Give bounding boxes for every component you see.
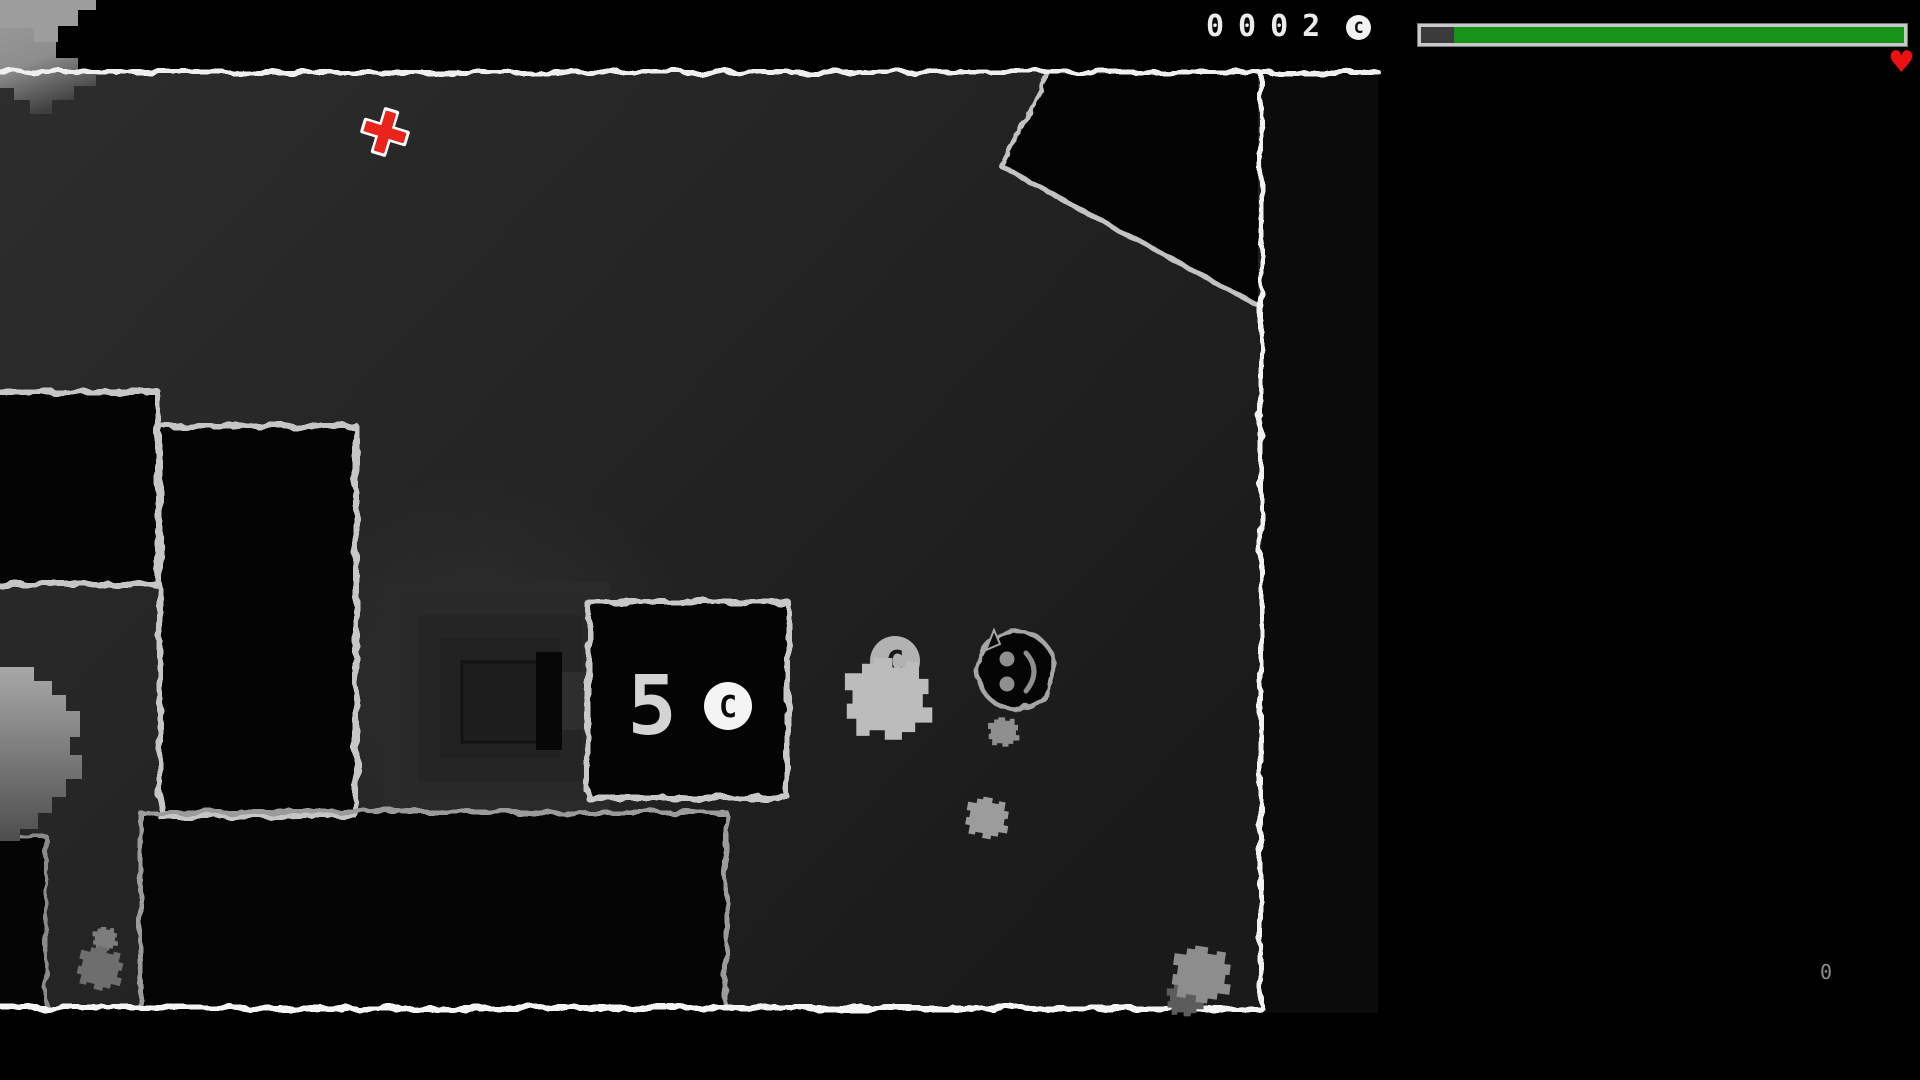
block-left-upper [0,392,158,584]
game-canvas[interactable]: 5 C C [0,0,1920,1080]
game-screen: 5 C C [0,0,1920,1080]
column-bottom-left [0,836,46,1008]
heart-icon: ♥ [1888,48,1915,78]
enemy-eye-top [1000,652,1015,667]
portal-structure [385,582,610,814]
coin-counter-coin-icon: C [1346,15,1371,40]
price-sign-coin-letter: C [719,690,737,725]
coin-counter-digits: 0002 [1206,12,1334,42]
enemy-eye-bottom [1000,677,1015,692]
price-sign[interactable] [588,602,788,798]
corner-score: 0 [1820,960,1832,984]
platform-bottom [140,812,726,1009]
block-left-tall [160,426,356,816]
outer-band [1262,72,1378,1013]
progress-bar-fill [1454,27,1904,43]
progress-bar [1418,24,1907,46]
coin-counter: 0002 C [1206,12,1371,42]
price-sign-number: 5 [627,659,676,754]
enemy-smiley[interactable] [977,630,1055,709]
